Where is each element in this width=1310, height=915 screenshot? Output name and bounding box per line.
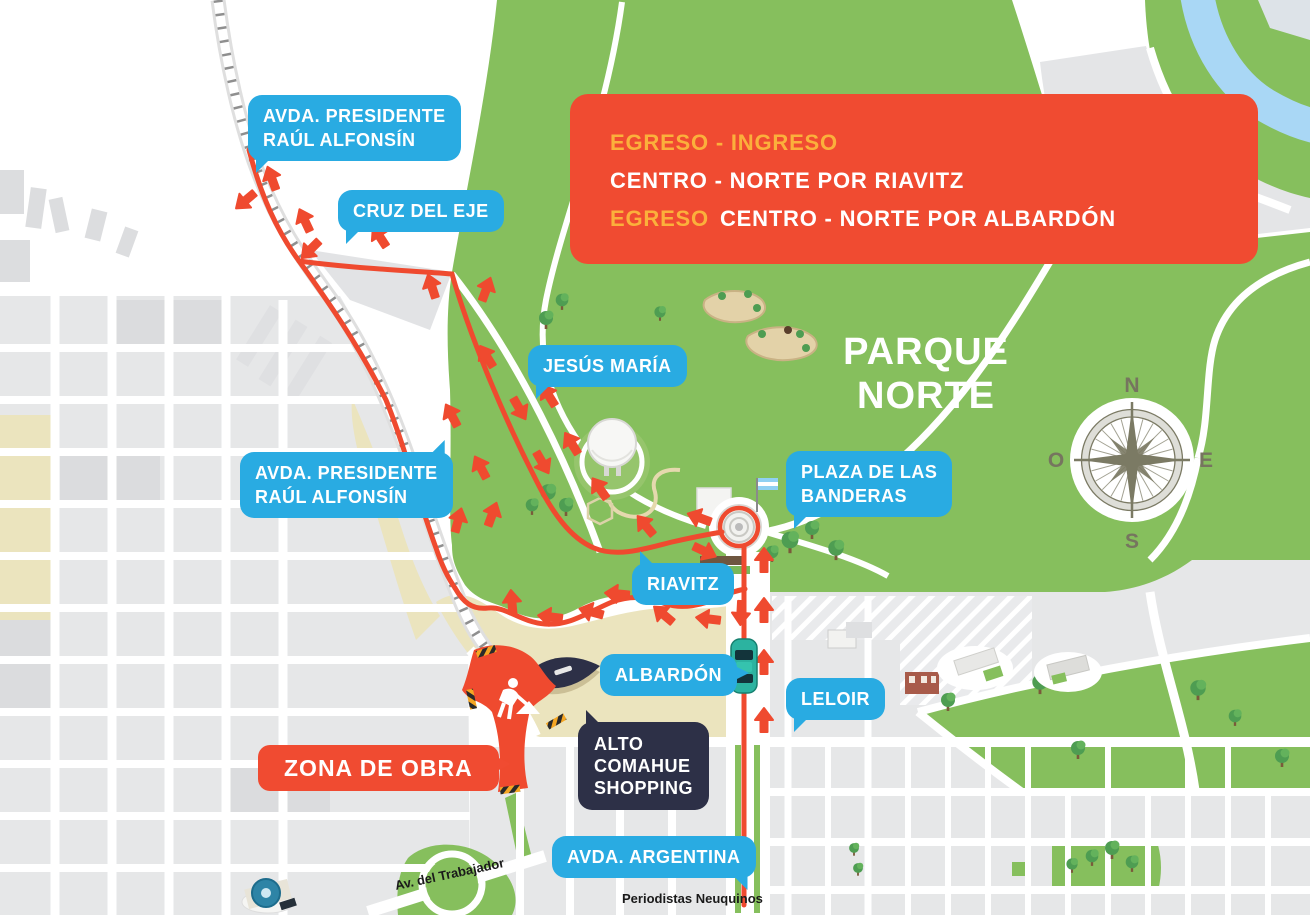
street-label-riavitz: RIAVITZ: [632, 563, 734, 605]
construction-zone-label: ZONA DE OBRA: [258, 745, 499, 791]
street-label-alfonsin-north: AVDA. PRESIDENTE RAÚL ALFONSÍN: [248, 95, 461, 161]
park-title-line1: PARQUE: [818, 330, 1034, 374]
motocross-rider-icon: [784, 326, 792, 334]
park-title: PARQUE NORTE: [818, 330, 1034, 418]
place-label-plaza-banderas: PLAZA DE LAS BANDERAS: [786, 451, 952, 517]
banner-line-egreso-ingreso: EGRESO - INGRESO: [610, 124, 1258, 162]
label-text: ZONA DE OBRA: [284, 756, 473, 780]
label-text: JESÚS MARÍA: [543, 354, 672, 378]
banner-line-riavitz: CENTRO - NORTE POR RIAVITZ: [610, 162, 1258, 200]
label-text: RIAVITZ: [647, 572, 719, 596]
banner-egreso-highlight: EGRESO: [610, 206, 709, 231]
park-title-line2: NORTE: [818, 374, 1034, 418]
label-text: AVDA. PRESIDENTE: [255, 461, 438, 485]
street-label-jesus-maria: JESÚS MARÍA: [528, 345, 687, 387]
label-text: BANDERAS: [801, 484, 937, 508]
banner-albardon-text: CENTRO - NORTE POR ALBARDÓN: [720, 206, 1116, 231]
compass-east-label: E: [1199, 449, 1213, 472]
label-text: ALTO: [594, 733, 693, 755]
compass-west-label: O: [1048, 449, 1064, 472]
compass-south-label: S: [1125, 530, 1139, 553]
street-label-leloir: LELOIR: [786, 678, 885, 720]
route-info-banner: EGRESO - INGRESO CENTRO - NORTE POR RIAV…: [570, 94, 1258, 264]
banner-line-albardon: EGRESOCENTRO - NORTE POR ALBARDÓN: [610, 200, 1258, 238]
label-text: RAÚL ALFONSÍN: [255, 485, 438, 509]
label-text: AVDA. PRESIDENTE: [263, 104, 446, 128]
traffic-detour-map: N E S O Av. del Trabajador Periodistas N…: [0, 0, 1310, 915]
label-text: PLAZA DE LAS: [801, 460, 937, 484]
label-text: CRUZ DEL EJE: [353, 199, 489, 223]
street-label-avda-argentina: AVDA. ARGENTINA: [552, 836, 756, 878]
label-text: COMAHUE: [594, 755, 693, 777]
label-text: AVDA. ARGENTINA: [567, 845, 741, 869]
label-text: ALBARDÓN: [615, 663, 722, 687]
street-label-albardon: ALBARDÓN: [600, 654, 737, 696]
shopping-label: ALTO COMAHUE SHOPPING: [578, 722, 709, 810]
street-label-cruz-del-eje: CRUZ DEL EJE: [338, 190, 504, 232]
label-text: SHOPPING: [594, 777, 693, 799]
street-name-periodistas: Periodistas Neuquinos: [622, 891, 763, 906]
label-text: LELOIR: [801, 687, 870, 711]
street-label-alfonsin-mid: AVDA. PRESIDENTE RAÚL ALFONSÍN: [240, 452, 453, 518]
compass-north-label: N: [1124, 374, 1139, 397]
label-text: RAÚL ALFONSÍN: [263, 128, 446, 152]
